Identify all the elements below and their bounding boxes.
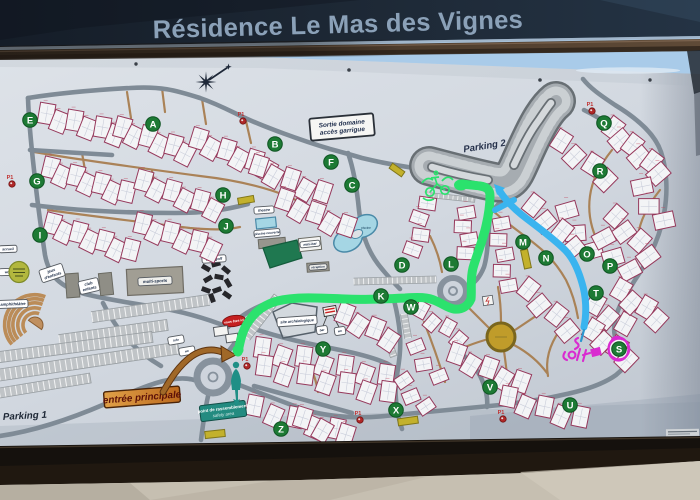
svg-text:A: A	[150, 119, 157, 130]
svg-text:P1: P1	[498, 410, 505, 416]
svg-text:P1: P1	[238, 112, 245, 118]
svg-text:X: X	[393, 405, 400, 416]
svg-text:P: P	[607, 261, 614, 272]
svg-text:P1: P1	[7, 175, 14, 181]
svg-text:T: T	[593, 288, 599, 299]
svg-text:E: E	[27, 115, 33, 126]
svg-text:Z: Z	[278, 424, 284, 435]
svg-text:W: W	[407, 302, 416, 313]
svg-text:O: O	[583, 249, 590, 260]
svg-text:accueil: accueil	[2, 247, 14, 251]
svg-text:I: I	[39, 230, 42, 241]
svg-text:N: N	[543, 253, 550, 264]
svg-text:M: M	[519, 237, 527, 248]
svg-text:Q: Q	[600, 118, 607, 129]
svg-text:Y: Y	[320, 344, 327, 355]
svg-text:Parking 1: Parking 1	[3, 410, 48, 423]
svg-text:piscine: piscine	[361, 226, 371, 230]
svg-text:C: C	[349, 180, 356, 191]
svg-text:S: S	[616, 344, 622, 355]
svg-text:P1: P1	[355, 411, 362, 417]
svg-text:wc: wc	[338, 329, 343, 334]
svg-text:J: J	[223, 221, 228, 232]
svg-text:K: K	[378, 291, 385, 302]
svg-text:V: V	[487, 382, 494, 393]
svg-text:P1: P1	[242, 357, 249, 363]
svg-text:P1: P1	[587, 102, 594, 108]
svg-text:theatre: theatre	[258, 208, 270, 213]
svg-text:U: U	[567, 400, 574, 411]
svg-text:R: R	[597, 166, 604, 177]
svg-text:B: B	[272, 139, 279, 150]
svg-text:L: L	[448, 259, 454, 270]
svg-text:amphithéâtre: amphithéâtre	[0, 301, 26, 307]
svg-text:F: F	[328, 157, 334, 168]
svg-text:D: D	[399, 260, 406, 271]
svg-text:H: H	[220, 190, 227, 201]
svg-text:G: G	[33, 176, 40, 187]
